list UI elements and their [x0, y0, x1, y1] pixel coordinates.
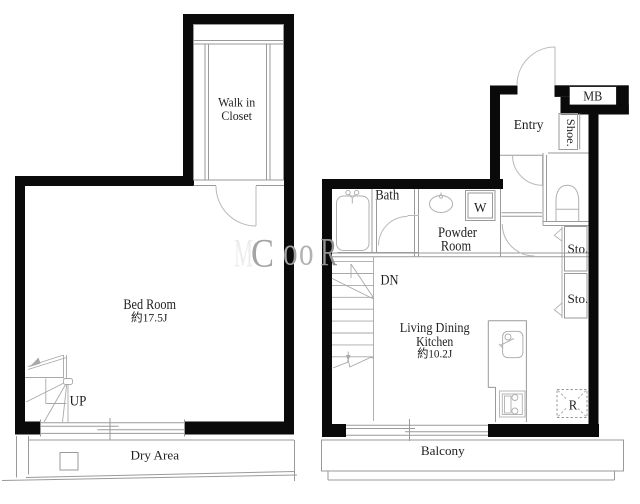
svg-text:UP: UP	[70, 394, 87, 410]
svg-text:DN: DN	[381, 273, 399, 289]
svg-text:R: R	[321, 230, 338, 275]
svg-text:Dry Area: Dry Area	[131, 448, 180, 463]
svg-text:Sto.: Sto.	[568, 242, 589, 256]
svg-text:Living Dining: Living Dining	[400, 320, 470, 335]
svg-text:Balcony: Balcony	[421, 443, 465, 458]
svg-text:Sto.: Sto.	[568, 292, 589, 306]
svg-text:W: W	[474, 200, 487, 215]
svg-text:Shoe.: Shoe.	[564, 119, 576, 147]
svg-text:Closet: Closet	[221, 108, 252, 123]
svg-text:約17.5J: 約17.5J	[131, 310, 168, 325]
svg-text:Bath: Bath	[375, 188, 400, 204]
svg-text:o: o	[283, 229, 298, 274]
svg-text:C: C	[251, 231, 274, 276]
svg-text:約10.2J: 約10.2J	[417, 346, 452, 361]
svg-text:Room: Room	[441, 238, 472, 254]
svg-text:Entry: Entry	[514, 118, 544, 133]
svg-text:MB: MB	[583, 88, 602, 103]
svg-text:o: o	[299, 229, 314, 274]
svg-text:R: R	[569, 397, 578, 412]
